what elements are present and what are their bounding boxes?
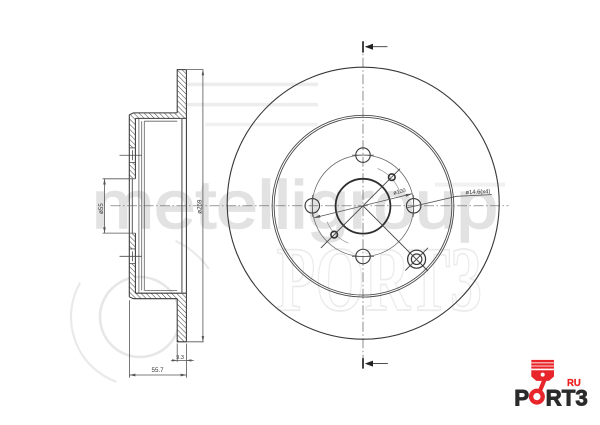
svg-text:55.7: 55.7 [152,367,165,374]
svg-text:ø269: ø269 [197,199,204,214]
svg-text:ø55: ø55 [98,203,105,214]
svg-text:PORT3: PORT3 [277,228,483,330]
svg-text:RT3: RT3 [546,386,588,411]
svg-text:9.3: 9.3 [176,355,184,361]
svg-text:P: P [514,386,529,411]
svg-text:ø14.6(x4): ø14.6(x4) [465,189,490,196]
svg-text:RU: RU [567,378,581,389]
